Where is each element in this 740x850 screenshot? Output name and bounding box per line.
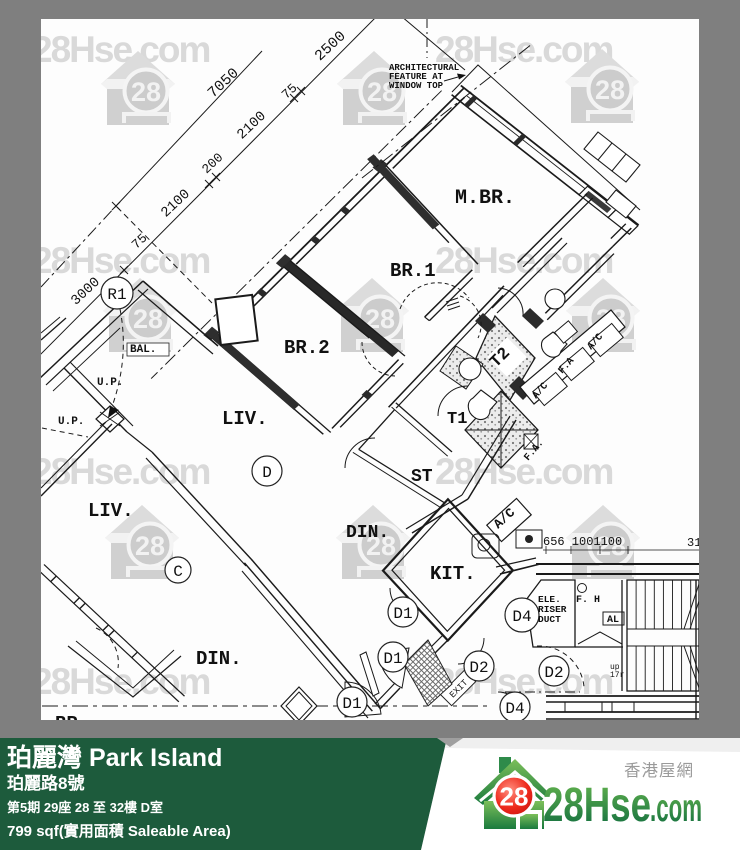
- svg-text:28: 28: [135, 531, 165, 561]
- svg-text:R1: R1: [107, 286, 126, 304]
- svg-text:D: D: [262, 464, 272, 482]
- svg-text:28: 28: [131, 77, 161, 107]
- svg-text:ST: ST: [411, 467, 433, 487]
- svg-text:BR.2: BR.2: [284, 337, 330, 359]
- svg-text:D1: D1: [383, 650, 402, 668]
- svg-text:D4: D4: [512, 608, 531, 626]
- svg-text:F. H: F. H: [576, 595, 600, 606]
- svg-text:28: 28: [500, 782, 529, 812]
- svg-text:DUCT: DUCT: [538, 614, 561, 625]
- svg-text:DIN.: DIN.: [196, 648, 242, 670]
- svg-text:珀麗灣 Park Island: 珀麗灣 Park Island: [7, 744, 222, 772]
- svg-text:U.P.: U.P.: [97, 377, 123, 389]
- svg-text:BAL.: BAL.: [130, 344, 156, 356]
- svg-text:28: 28: [595, 75, 625, 105]
- svg-text:第5期 29座 28 至 32樓 D室: 第5期 29座 28 至 32樓 D室: [7, 800, 163, 815]
- svg-text:珀麗路8號: 珀麗路8號: [7, 773, 84, 793]
- svg-text:28: 28: [133, 304, 163, 334]
- svg-text:D1: D1: [342, 695, 361, 713]
- svg-text:799 sqf(實用面積 Saleable Area): 799 sqf(實用面積 Saleable Area): [7, 822, 231, 840]
- svg-text:KIT.: KIT.: [430, 563, 476, 585]
- svg-text:D2: D2: [469, 659, 488, 677]
- svg-text:D1: D1: [393, 605, 412, 623]
- svg-text:U.P.: U.P.: [58, 416, 84, 428]
- svg-text:D4: D4: [505, 700, 524, 718]
- svg-text:656 1001100: 656 1001100: [543, 535, 622, 549]
- svg-text:17r: 17r: [610, 671, 625, 680]
- svg-text:M.BR.: M.BR.: [455, 187, 515, 210]
- svg-text:C: C: [173, 563, 183, 581]
- svg-text:28Hse.com: 28Hse.com: [32, 240, 209, 281]
- svg-text:T1: T1: [447, 410, 467, 429]
- svg-text:BR.1: BR.1: [390, 260, 436, 282]
- svg-text:28Hse.com: 28Hse.com: [32, 661, 209, 702]
- svg-text:LIV.: LIV.: [88, 500, 134, 522]
- svg-text:28Hse.com: 28Hse.com: [32, 29, 209, 70]
- svg-text:DIN.: DIN.: [346, 523, 389, 543]
- svg-text:.com: .com: [650, 787, 702, 830]
- svg-text:LIV.: LIV.: [222, 408, 268, 430]
- svg-text:香港屋網: 香港屋網: [624, 761, 694, 780]
- svg-text:WINDOW TOP: WINDOW TOP: [389, 81, 444, 91]
- svg-text:D2: D2: [544, 664, 563, 682]
- svg-text:28Hse: 28Hse: [543, 779, 651, 832]
- svg-text:AL: AL: [607, 615, 619, 626]
